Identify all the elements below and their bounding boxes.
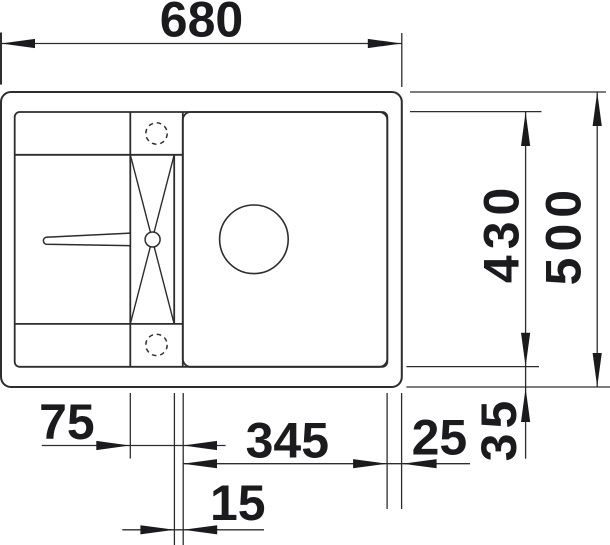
svg-text:15: 15: [210, 475, 266, 531]
svg-text:500: 500: [536, 184, 592, 285]
svg-text:345: 345: [246, 413, 329, 469]
svg-text:35: 35: [471, 396, 527, 462]
svg-text:25: 25: [412, 410, 468, 466]
svg-text:75: 75: [39, 394, 95, 450]
svg-text:430: 430: [474, 182, 530, 283]
svg-text:680: 680: [160, 0, 243, 48]
